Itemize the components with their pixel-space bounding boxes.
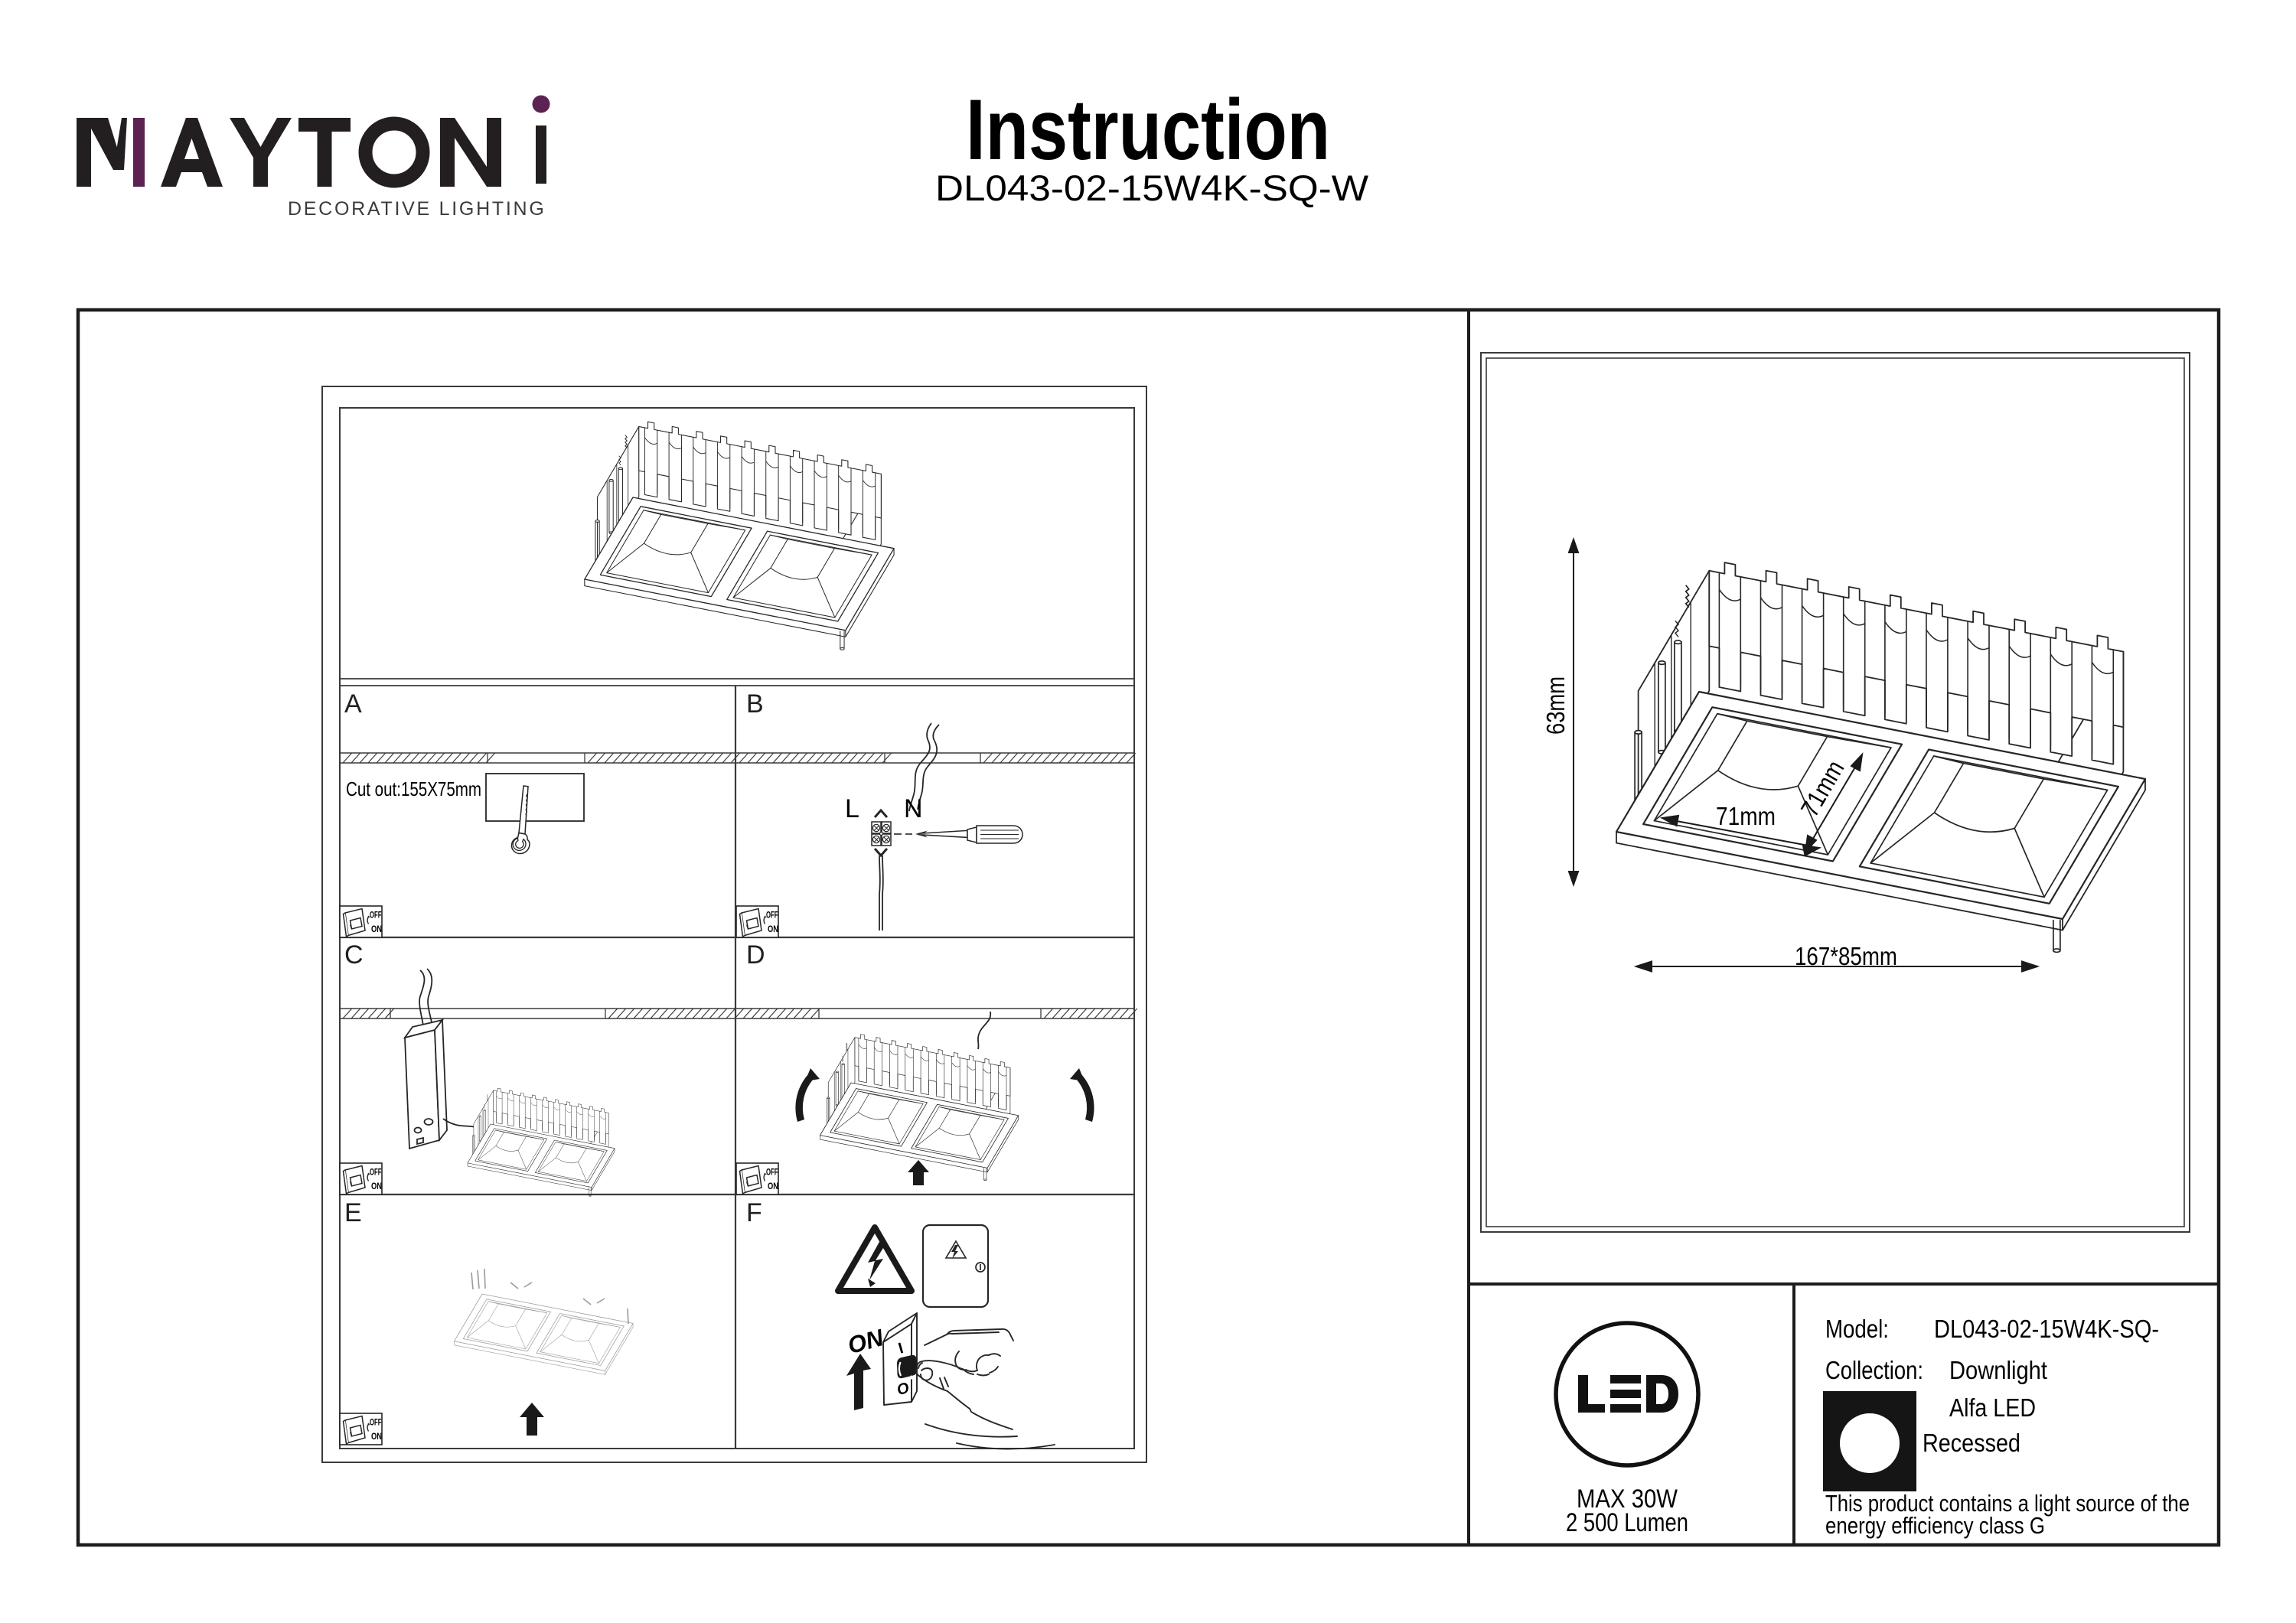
svg-text:E: E: [344, 1198, 362, 1227]
svg-text:B: B: [746, 689, 764, 719]
svg-text:A: A: [344, 689, 362, 719]
svg-text:L: L: [845, 794, 859, 823]
svg-text:D: D: [746, 940, 765, 970]
svg-text:Cut out:155X75mm: Cut out:155X75mm: [346, 777, 481, 800]
svg-text:ON: ON: [845, 1324, 887, 1359]
svg-text:Model:: Model:: [1825, 1315, 1889, 1343]
svg-text:Instruction: Instruction: [966, 82, 1330, 178]
svg-text:Alfa LED: Alfa LED: [1949, 1393, 2036, 1422]
svg-text:2 500 Lumen: 2 500 Lumen: [1566, 1508, 1688, 1537]
svg-text:Collection:: Collection:: [1825, 1356, 1923, 1384]
svg-text:energy efficiency class G: energy efficiency class G: [1825, 1512, 2045, 1539]
svg-text:F: F: [746, 1198, 762, 1227]
svg-text:C: C: [344, 940, 364, 970]
svg-text:71mm: 71mm: [1716, 802, 1776, 830]
svg-text:63mm: 63mm: [1541, 676, 1570, 735]
svg-text:DECORATIVE LIGHTING: DECORATIVE LIGHTING: [288, 198, 546, 220]
svg-text:DL043-02-15W4K-SQ-W: DL043-02-15W4K-SQ-W: [935, 168, 1369, 208]
svg-text:DL043-02-15W4K-SQ-: DL043-02-15W4K-SQ-: [1934, 1315, 2159, 1343]
svg-text:Recessed: Recessed: [1923, 1429, 2020, 1457]
svg-text:167*85mm: 167*85mm: [1795, 942, 1897, 970]
svg-text:N: N: [904, 794, 923, 823]
svg-text:Downlight: Downlight: [1949, 1356, 2047, 1384]
